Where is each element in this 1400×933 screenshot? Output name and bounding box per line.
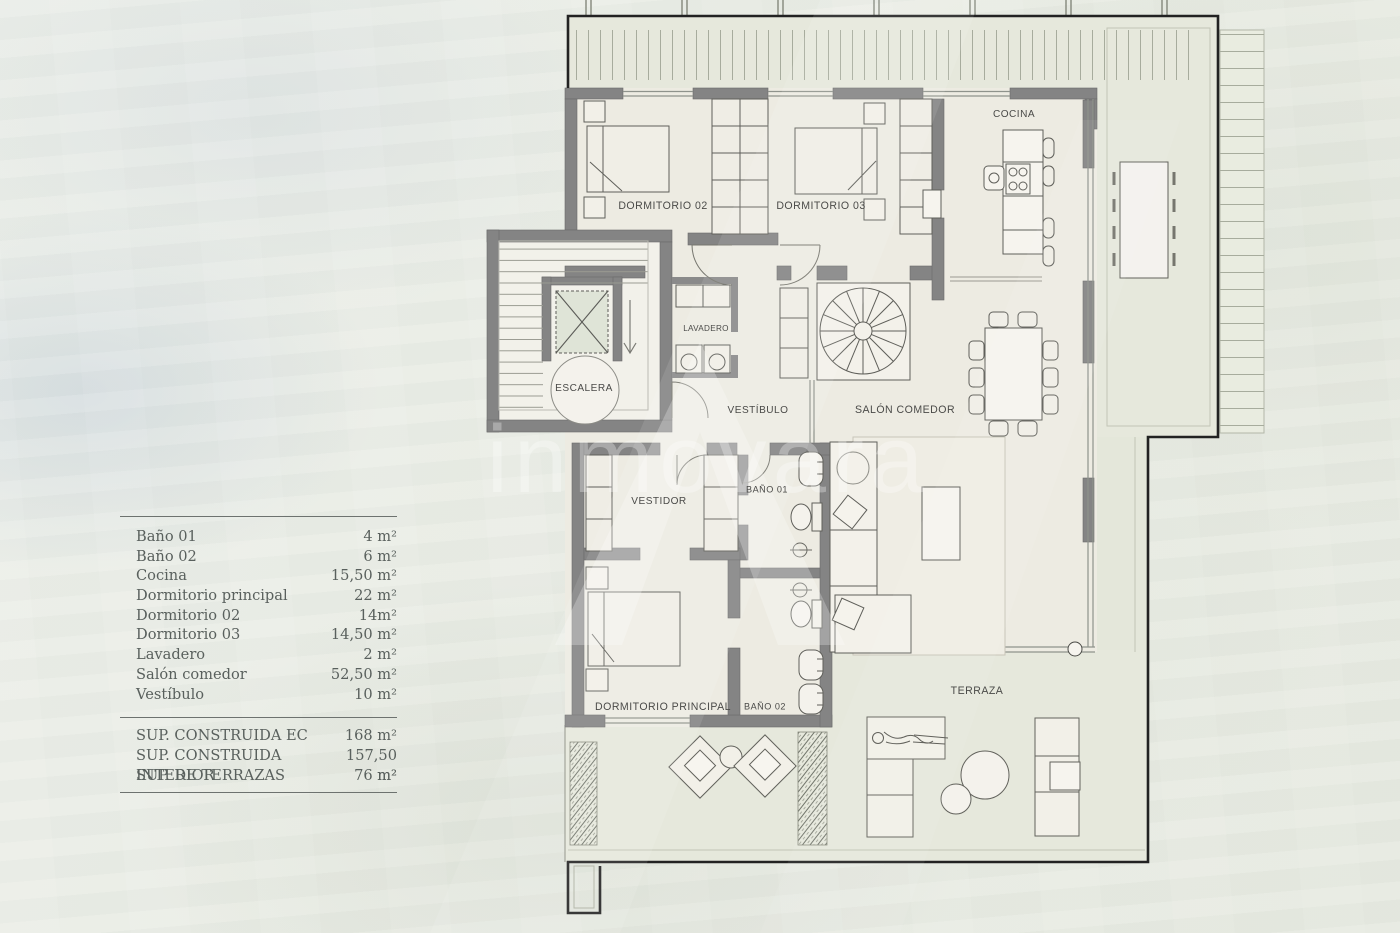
room-label-bano01: BAÑO 01 (746, 485, 788, 496)
legend-total-name: SUP. DE TERRAZAS (120, 766, 285, 786)
legend-row: Cocina15,50 m² (120, 566, 397, 586)
floorplan-page: { "watermark": { "text": "inmovara" }, "… (0, 0, 1400, 933)
legend-room-value: 52,50 m² (331, 665, 397, 685)
room-label-lavadero: LAVADERO (683, 323, 729, 333)
legend-room-name: Baño 02 (120, 547, 197, 567)
room-label-vestibulo: VESTÍBULO (728, 404, 789, 416)
legend-total-name: SUP. CONSTRUIDA EC (120, 726, 308, 746)
legend-total-value: 168 m² (345, 726, 397, 746)
legend-room-value: 22 m² (354, 586, 397, 606)
legend-room-value: 2 m² (363, 645, 397, 665)
legend-total-value: 76 m² (354, 766, 397, 786)
legend-row: Vestíbulo10 m² (120, 685, 397, 705)
spiral-stair (817, 283, 910, 380)
legend-row: Baño 014 m² (120, 527, 397, 547)
top-pergola-louvers (575, 30, 1195, 80)
legend-row: Salón comedor52,50 m² (120, 665, 397, 685)
legend-total-rows: SUP. CONSTRUIDA EC168 m² SUP. CONSTRUIDA… (120, 718, 397, 792)
legend-row: Dormitorio principal22 m² (120, 586, 397, 606)
legend-room-name: Vestíbulo (120, 685, 204, 705)
legend-row: Lavadero2 m² (120, 645, 397, 665)
room-label-vestidor: VESTIDOR (631, 495, 686, 507)
room-label-escalera: ESCALERA (555, 382, 613, 394)
legend-room-value: 14,50 m² (331, 625, 397, 645)
room-label-salon-comedor: SALÓN COMEDOR (855, 404, 955, 416)
legend-total-value: 157,50 m² (332, 746, 397, 766)
legend-room-name: Cocina (120, 566, 187, 586)
legend-row: Dormitorio 0314,50 m² (120, 625, 397, 645)
legend-room-rows: Baño 014 m² Baño 026 m² Cocina15,50 m² D… (120, 517, 397, 704)
pergola-posts (586, 0, 1167, 16)
legend-row: Dormitorio 0214m² (120, 606, 397, 626)
legend-room-value: 14m² (359, 606, 397, 626)
legend-room-value: 15,50 m² (331, 566, 397, 586)
legend-room-name: Dormitorio 02 (120, 606, 240, 626)
legend-total-row: SUP. DE TERRAZAS76 m² (120, 766, 397, 786)
area-legend: Baño 014 m² Baño 026 m² Cocina15,50 m² D… (120, 516, 397, 793)
room-label-dormitorio03: DORMITORIO 03 (776, 200, 865, 212)
legend-room-name: Lavadero (120, 645, 205, 665)
legend-room-name: Dormitorio 03 (120, 625, 240, 645)
room-label-cocina: COCINA (993, 108, 1035, 120)
legend-room-value: 10 m² (354, 685, 397, 705)
room-label-bano02: BAÑO 02 (744, 702, 786, 713)
legend-room-name: Baño 01 (120, 527, 197, 547)
legend-room-value: 6 m² (363, 547, 397, 567)
legend-row: Baño 026 m² (120, 547, 397, 567)
legend-rule-bottom (120, 792, 397, 793)
right-pergola-louvers (1220, 33, 1264, 431)
legend-total-name: SUP. CONSTRUIDA INTERIOR (120, 746, 332, 766)
legend-room-name: Dormitorio principal (120, 586, 288, 606)
legend-total-row: SUP. CONSTRUIDA INTERIOR157,50 m² (120, 746, 397, 766)
room-label-terraza: TERRAZA (951, 685, 1004, 697)
legend-room-value: 4 m² (363, 527, 397, 547)
legend-room-name: Salón comedor (120, 665, 247, 685)
legend-total-row: SUP. CONSTRUIDA EC168 m² (120, 726, 397, 746)
room-label-dormitorio-principal: DORMITORIO PRINCIPAL (595, 701, 731, 713)
room-label-dormitorio02: DORMITORIO 02 (618, 200, 707, 212)
